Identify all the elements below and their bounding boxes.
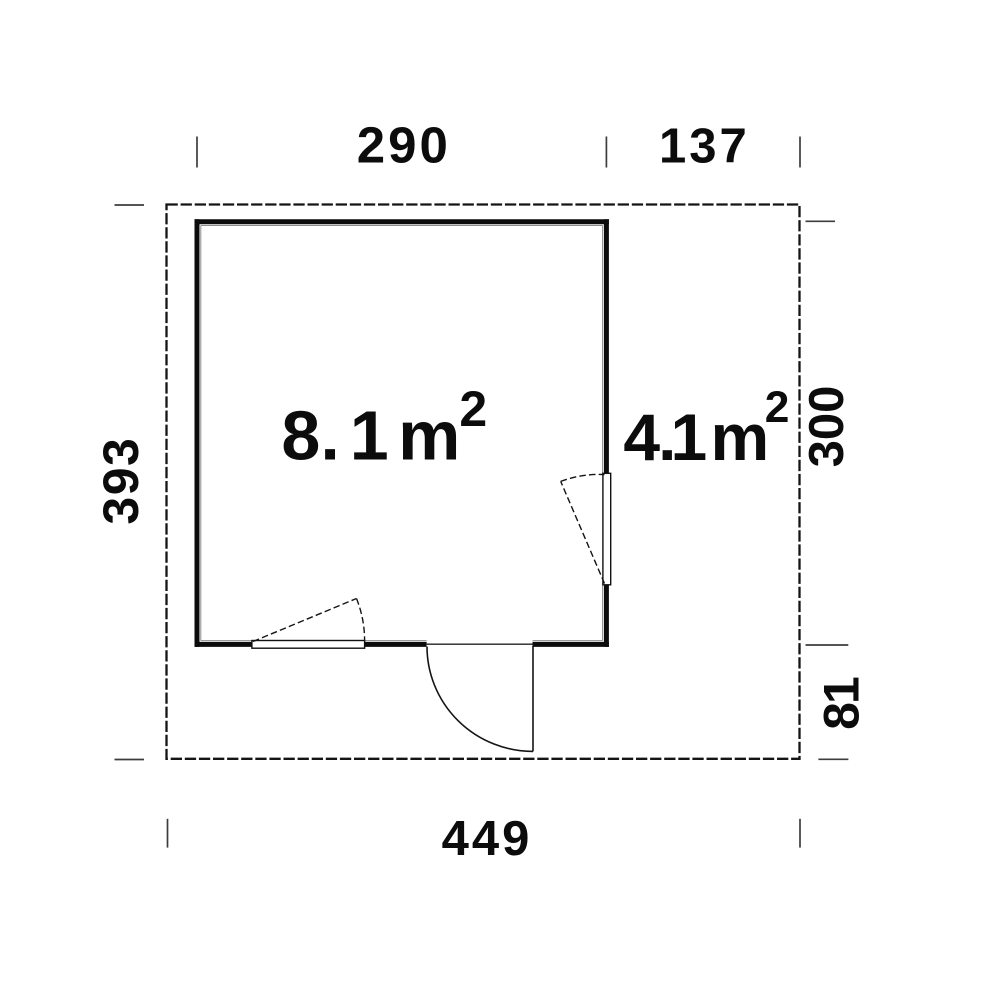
svg-text:449: 449 [442,812,533,866]
svg-text:137: 137 [659,120,750,174]
svg-text:393: 393 [93,437,149,525]
svg-text:81: 81 [814,677,870,730]
svg-text:300: 300 [800,386,854,468]
svg-text:290: 290 [357,117,451,174]
